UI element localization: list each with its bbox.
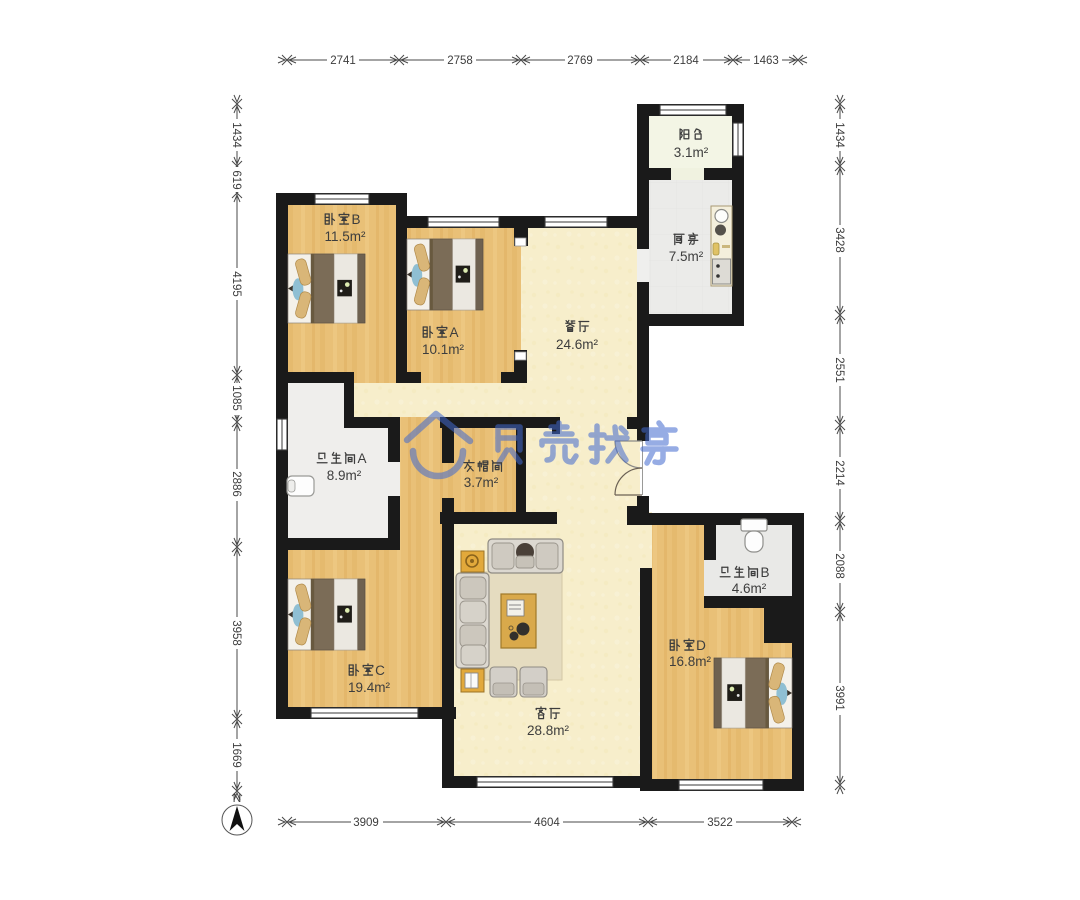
svg-text:2214: 2214: [833, 460, 845, 486]
svg-text:3.7m²: 3.7m²: [464, 475, 499, 490]
svg-text:2886: 2886: [230, 471, 242, 497]
svg-text:3428: 3428: [833, 227, 845, 253]
svg-text:B: B: [760, 565, 769, 580]
svg-text:C: C: [375, 663, 385, 678]
svg-text:A: A: [357, 451, 366, 466]
svg-text:4604: 4604: [534, 817, 560, 829]
svg-text:1669: 1669: [230, 742, 242, 768]
svg-text:A: A: [449, 325, 458, 340]
svg-text:16.8m²: 16.8m²: [669, 654, 712, 669]
svg-text:B: B: [351, 212, 360, 227]
svg-text:D: D: [696, 638, 706, 653]
svg-text:10.1m²: 10.1m²: [422, 342, 465, 357]
svg-text:619: 619: [230, 170, 242, 189]
svg-text:19.4m²: 19.4m²: [348, 680, 391, 695]
svg-text:4.6m²: 4.6m²: [732, 581, 767, 596]
svg-text:3522: 3522: [707, 817, 733, 829]
svg-text:2769: 2769: [567, 55, 593, 67]
svg-text:2758: 2758: [447, 55, 473, 67]
svg-text:1434: 1434: [230, 122, 242, 148]
svg-text:2551: 2551: [833, 357, 845, 383]
svg-text:1085: 1085: [230, 385, 242, 411]
svg-text:3909: 3909: [353, 817, 379, 829]
svg-text:7.5m²: 7.5m²: [669, 249, 704, 264]
svg-text:28.8m²: 28.8m²: [527, 723, 570, 738]
svg-text:24.6m²: 24.6m²: [556, 337, 599, 352]
svg-text:3991: 3991: [833, 685, 845, 711]
svg-text:3958: 3958: [230, 620, 242, 646]
svg-text:N: N: [233, 791, 242, 805]
svg-text:1434: 1434: [833, 122, 845, 148]
svg-text:1463: 1463: [753, 55, 779, 67]
svg-text:2741: 2741: [330, 55, 356, 67]
svg-text:3.1m²: 3.1m²: [674, 145, 709, 160]
svg-text:11.5m²: 11.5m²: [324, 229, 366, 244]
svg-text:4195: 4195: [230, 271, 242, 297]
svg-text:2184: 2184: [673, 55, 699, 67]
svg-text:2088: 2088: [833, 553, 845, 579]
svg-text:8.9m²: 8.9m²: [327, 468, 362, 483]
